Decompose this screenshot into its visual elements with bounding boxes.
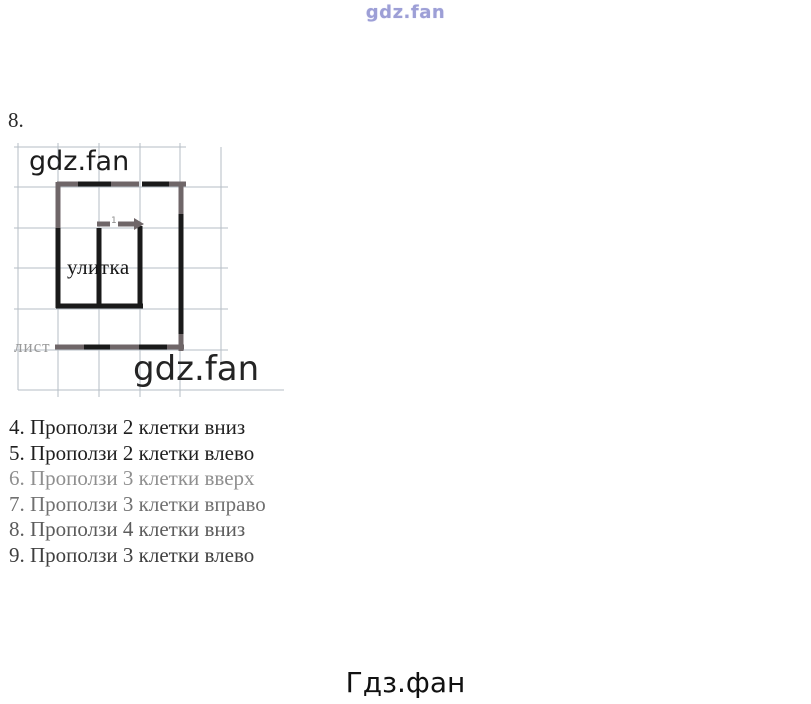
instruction-list: 4. Проползи 2 клетки вниз 5. Проползи 2 … bbox=[9, 415, 266, 568]
scanned-workbook-page: gdz.fan 8. gdz.fan gdz.fan улитка лист 1… bbox=[0, 0, 811, 704]
step-one-mark: 1 bbox=[111, 216, 117, 226]
instruction-line: 4. Проползи 2 клетки вниз bbox=[9, 415, 266, 441]
instruction-line: 5. Проползи 2 клетки влево bbox=[9, 441, 266, 467]
snail-label: улитка bbox=[67, 255, 130, 280]
instruction-line: 6. Проползи 3 клетки вверх bbox=[9, 466, 266, 492]
site-footer-label: Гдз.фан bbox=[0, 666, 811, 699]
site-watermark-below-grid: gdz.fan bbox=[133, 349, 259, 389]
instruction-line: 8. Проползи 4 клетки вниз bbox=[9, 517, 266, 543]
snail-path-grid-diagram bbox=[0, 0, 811, 704]
instruction-line: 7. Проползи 3 клетки вправо bbox=[9, 492, 266, 518]
site-watermark-on-grid: gdz.fan bbox=[29, 146, 129, 177]
instruction-line: 9. Проползи 3 клетки влево bbox=[9, 543, 266, 569]
leaf-label: лист bbox=[14, 337, 51, 357]
